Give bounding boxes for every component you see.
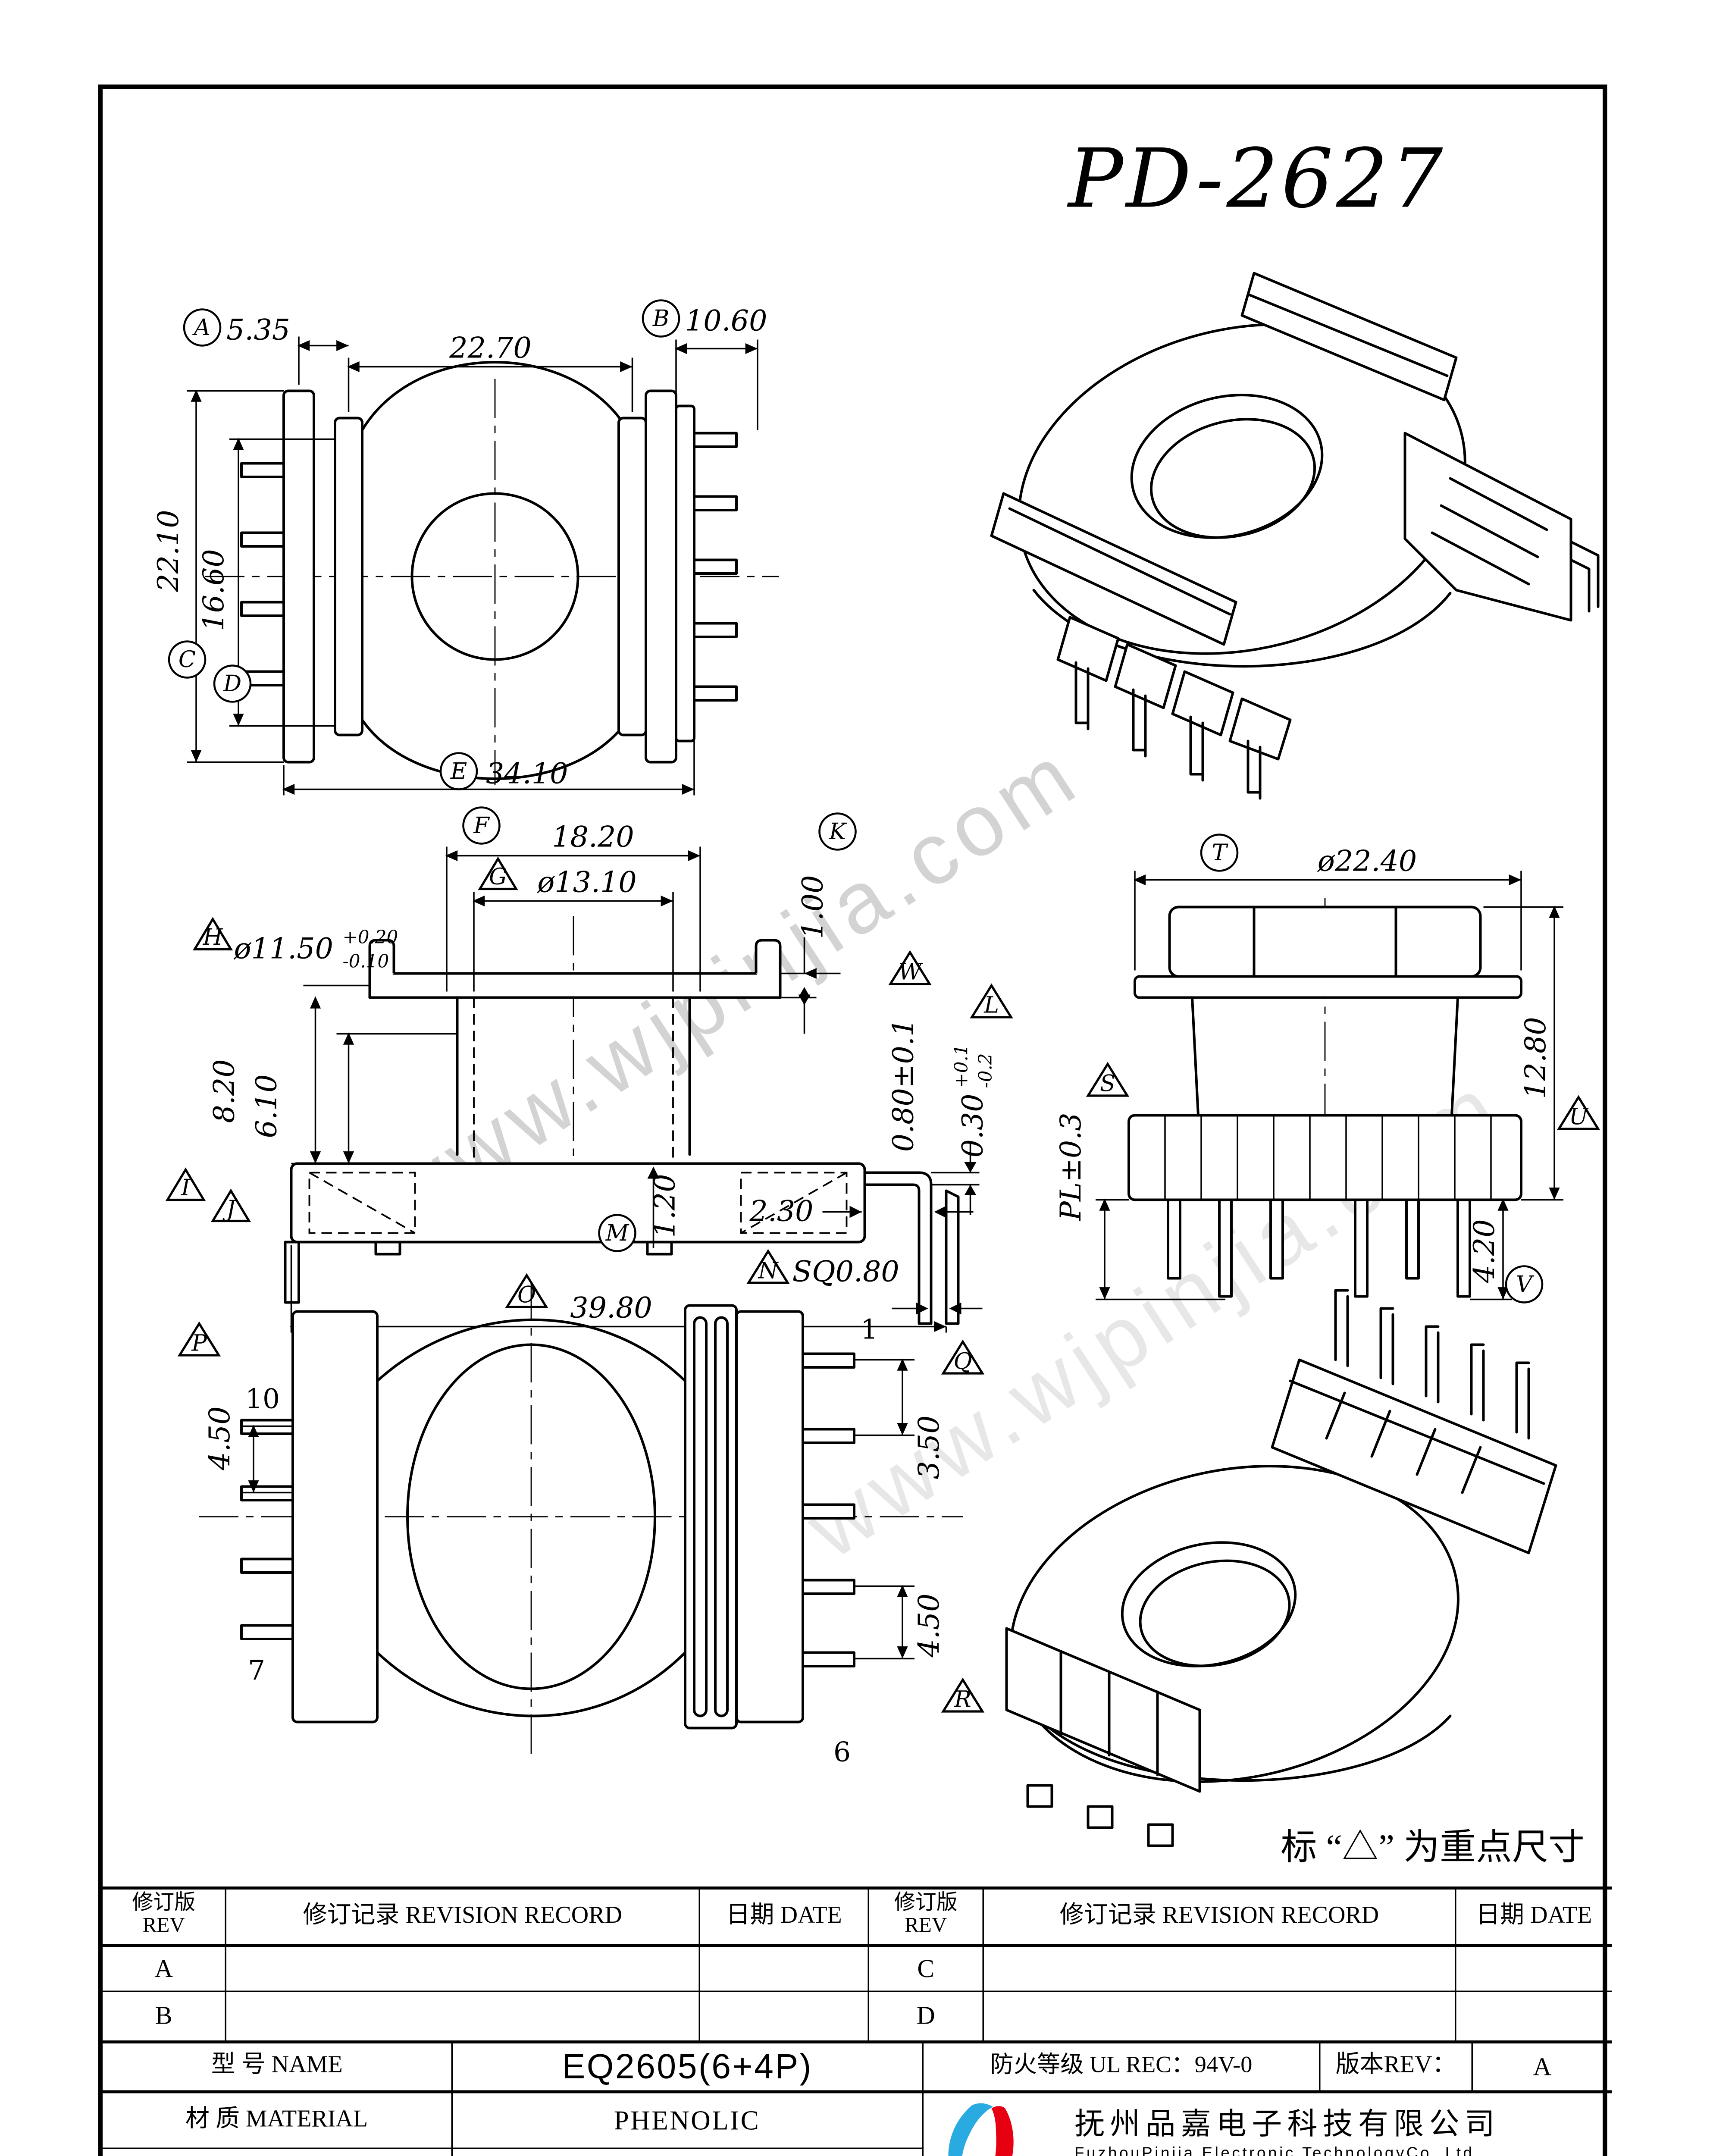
left-outer-flange	[284, 391, 314, 762]
company-name-1-cn: 抚州品嘉电子科技有限公司	[1074, 2100, 1603, 2143]
dim-f: 18.20	[552, 820, 634, 854]
rev-header-cell-2: 修订版 REV	[869, 1890, 984, 1944]
version-label: 版本REV：	[1321, 2043, 1473, 2090]
marker-f: F	[473, 812, 490, 839]
dim-l: 0.30	[956, 1094, 990, 1157]
dim-e: 34.10	[486, 757, 568, 790]
fin-block	[1129, 1116, 1521, 1200]
dim-d: 16.60	[197, 549, 230, 631]
marker-a: A	[192, 314, 210, 341]
dim-s: PL±0.3	[1054, 1112, 1087, 1221]
marker-w: W	[899, 959, 924, 985]
marker-i: I	[181, 1175, 191, 1201]
rev-a: A	[103, 1947, 226, 1991]
marker-d: D	[223, 671, 241, 697]
pin-comb	[736, 1312, 803, 1722]
company-name-1-en: FuzhouPinjia Electronic TechnologyCo.,Lt…	[1074, 2145, 1603, 2156]
drawing-page: PD-2627 www.wjpinjia.com www.wjpinjia.co…	[0, 0, 1710, 2156]
marker-s: S	[1100, 1071, 1115, 1097]
marker-k: K	[829, 818, 847, 845]
dim-b: 10.60	[685, 304, 767, 338]
marker-h: H	[203, 924, 223, 950]
dim-m: 1.20	[648, 1174, 682, 1238]
dim-j: 6.10	[250, 1074, 283, 1138]
key-dimension-note: 标 “△” 为重点尺寸	[1281, 1817, 1585, 1870]
marker-g: G	[489, 864, 507, 890]
top-view-left-pins	[241, 1420, 293, 1639]
dim-u: 12.80	[1519, 1017, 1552, 1099]
marker-m: M	[605, 1220, 630, 1246]
dim-h-plus: +0.20	[343, 927, 398, 948]
record-header-cell: 修订记录 REVISION RECORD	[226, 1890, 700, 1944]
drawing-title: PD-2627	[1008, 132, 1506, 227]
pin-number-6: 6	[833, 1736, 851, 1768]
material-label: 材 质 MATERIAL	[103, 2093, 452, 2148]
dim-i: 8.20	[207, 1059, 241, 1123]
side-view-drawing: T ø22.40 S PL±0.3 12.80 U 4.20 V	[1023, 832, 1604, 1307]
marker-p: P	[191, 1330, 207, 1357]
rev-header-cn: 修订版	[132, 1895, 195, 1917]
pin-number-1: 1	[861, 1314, 878, 1345]
rev-header-en: REV	[143, 1917, 185, 1939]
front-view-drawing: 22.70 A 5.35 B 10.60 22.10 16.60 C D E 3…	[145, 295, 839, 808]
dim-g: ø13.10	[536, 865, 636, 899]
marker-l: L	[983, 992, 999, 1018]
dim-l-plus: +0.1	[951, 1044, 972, 1088]
marker-u: U	[1569, 1104, 1589, 1130]
marker-e: E	[450, 758, 467, 784]
date-header-cell: 日期 DATE	[700, 1890, 869, 1944]
dim-h-minus: -0.10	[343, 951, 389, 972]
rev-header-cell: 修订版 REV	[103, 1890, 226, 1944]
rev-a-date	[700, 1947, 869, 1991]
rev-a-record	[226, 1947, 700, 1991]
right-pin-block	[1405, 433, 1571, 620]
top-view-right-pins	[803, 1354, 854, 1667]
marker-b: B	[652, 305, 670, 332]
marker-t: T	[1212, 840, 1228, 866]
material-value: PHENOLIC	[452, 2093, 922, 2148]
dim-k: 1.00	[796, 875, 830, 939]
dim-h: ø11.50	[233, 932, 333, 965]
rev-c-record	[984, 1947, 1456, 1991]
rev-d-date	[1456, 1992, 1612, 2040]
version-value: A	[1473, 2043, 1612, 2090]
revision-header-row: 修订版 REV 修订记录 REVISION RECORD 日期 DATE 修订版…	[103, 1890, 1612, 1947]
pin-material-row: PIN材质 PIN MATERIAL CP WIRE	[103, 2149, 922, 2156]
rev-b-date	[700, 1992, 869, 2040]
pin-number-10: 10	[245, 1383, 280, 1415]
dim-a: 5.35	[226, 313, 290, 347]
pin-material-value: CP WIRE	[452, 2149, 922, 2156]
model-row: 型 号 NAME EQ2605(6+4P) 防火等级 UL REC：94V-0 …	[103, 2043, 1612, 2093]
revision-row-1: A C	[103, 1947, 1612, 1992]
dim-l-minus: -0.2	[975, 1053, 996, 1088]
dim-front-width: 22.70	[449, 331, 531, 365]
rev-d-record	[984, 1992, 1456, 2040]
left-pins	[241, 464, 284, 686]
top-cap	[1170, 907, 1481, 977]
revision-row-2: B D	[103, 1992, 1612, 2043]
model-value: EQ2605(6+4P)	[453, 2043, 924, 2090]
pinjia-logo-icon	[939, 2103, 1038, 2156]
title-block: 修订版 REV 修订记录 REVISION RECORD 日期 DATE 修订版…	[103, 1887, 1612, 2156]
rev-b-record	[226, 1992, 700, 2040]
right-pins	[694, 433, 736, 701]
model-label: 型 号 NAME	[103, 2043, 453, 2090]
pin-number-7: 7	[248, 1655, 265, 1686]
left-flange-plate	[293, 1312, 377, 1722]
dim-w: 0.80±0.1	[886, 1018, 920, 1152]
dim-t: ø22.40	[1317, 844, 1417, 878]
company-block: 品嘉科技 PIN JIA Sci. & Tech	[924, 2093, 1612, 2156]
rev-d: D	[869, 1992, 984, 2040]
dim-pin-offset: 2.30	[749, 1194, 813, 1228]
fire-rating: 防火等级 UL REC：94V-0	[924, 2043, 1321, 2090]
rev-c-date	[1456, 1947, 1612, 1991]
dim-c: 22.10	[151, 510, 185, 592]
rev-c: C	[869, 1947, 984, 1991]
dim-p: 4.50	[203, 1406, 236, 1470]
marker-c: C	[179, 646, 196, 673]
date-header-cell-2: 日期 DATE	[1456, 1890, 1612, 1944]
iso-view-bottom	[940, 1254, 1627, 1858]
pin-material-label: PIN材质 PIN MATERIAL	[103, 2149, 452, 2156]
drawing-sheet-frame: PD-2627 www.wjpinjia.com www.wjpinjia.co…	[98, 85, 1607, 2156]
top-flange	[370, 974, 780, 998]
rev-b: B	[103, 1992, 226, 2040]
top-view-drawing: 10 7 1 6 P 4.50 Q 3.50 4.50 R	[148, 1263, 1001, 1777]
iso-view-top	[925, 240, 1604, 806]
record-header-cell-2: 修订记录 REVISION RECORD	[984, 1890, 1456, 1944]
material-row: 材 质 MATERIAL PHENOLIC	[103, 2093, 922, 2150]
